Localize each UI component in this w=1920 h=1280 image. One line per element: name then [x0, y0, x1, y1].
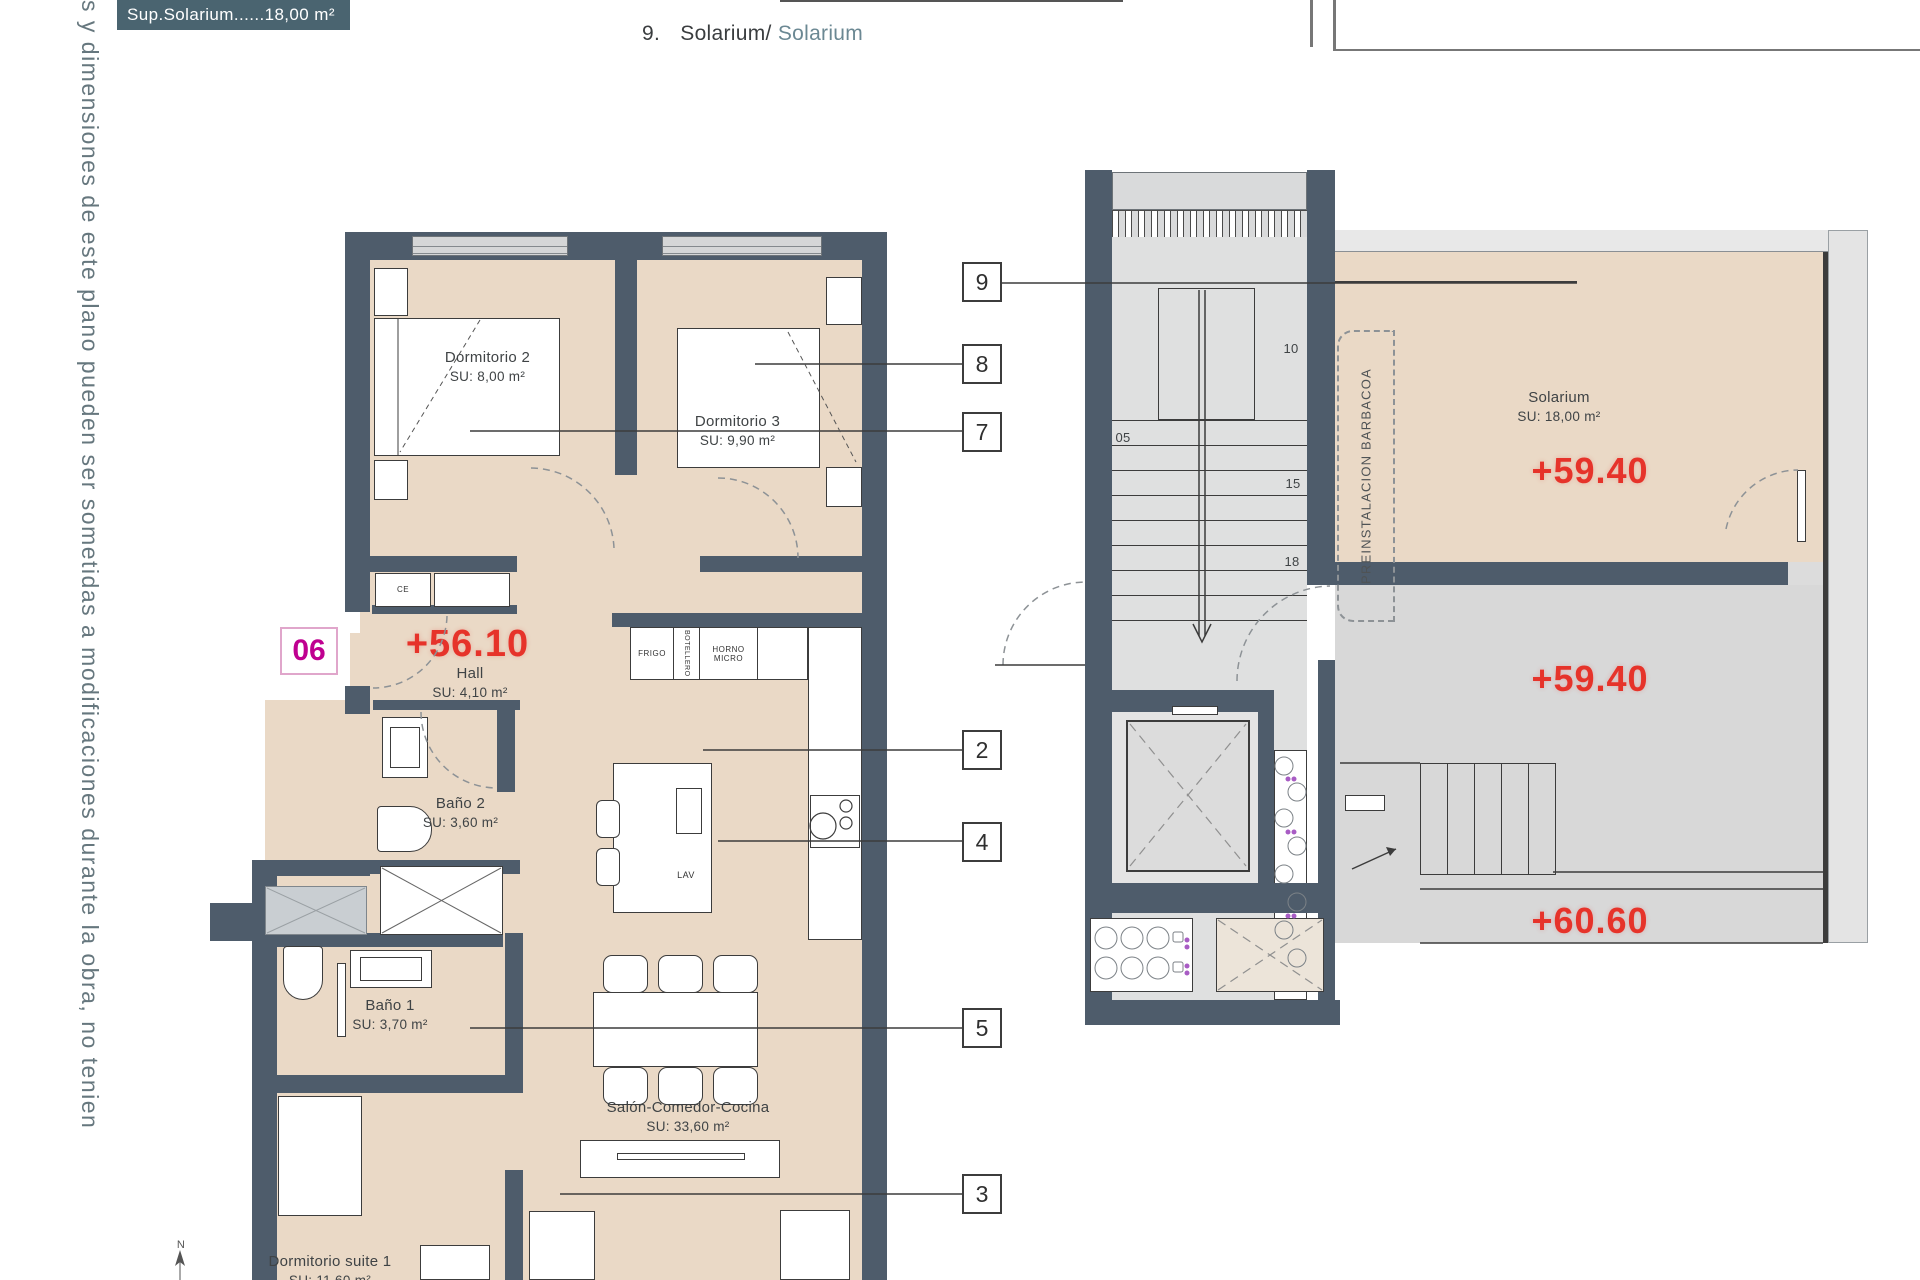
wall-left-stub: [345, 686, 370, 714]
stair-treads: [1112, 420, 1307, 644]
room-label-suite: Dormitorio suite 1 SU: 11,60 m²: [230, 1252, 430, 1280]
nightstand: [374, 460, 408, 500]
kitchen-counter-top: FRIGO BOTELLERO HORNO MICRO: [630, 627, 808, 680]
level-terrace: +59.40: [1490, 656, 1690, 703]
stairwell-void: [1158, 288, 1255, 420]
cooktop: [810, 795, 860, 848]
core-top-landing: [1112, 172, 1307, 210]
callout-3: 3: [962, 1174, 1002, 1214]
suite-bed: [420, 1245, 490, 1280]
cropped-table-edge: [780, 0, 1123, 2]
wall-pillar: [210, 903, 256, 941]
closet: [826, 467, 862, 507]
room-name: Dormitorio suite 1: [230, 1252, 430, 1272]
room-area: SU: 18,00 m²: [1459, 408, 1659, 426]
core-wall-right: [1307, 236, 1335, 585]
dining-table: [593, 992, 758, 1067]
window-dormitorio2: [412, 236, 568, 256]
closet: [434, 573, 510, 607]
room-label-dormitorio2: Dormitorio 2 SU: 8,00 m²: [395, 348, 580, 385]
callout-2: 2: [962, 730, 1002, 770]
sofa: [780, 1210, 850, 1280]
floor-terrace: [1335, 585, 1828, 943]
fridge-cell: FRIGO: [631, 628, 674, 679]
elevator-wall-right: [1258, 690, 1274, 883]
core-wall-mid: [1085, 883, 1335, 913]
shower: [265, 886, 367, 935]
sofa: [529, 1211, 595, 1280]
terrace-stair-treads: [1420, 763, 1556, 875]
callout-7: 7: [962, 412, 1002, 452]
wall-suite-divider: [505, 933, 523, 1093]
wall-bath1-north: [252, 933, 503, 947]
sink-basin: [390, 727, 420, 768]
vent-grille: [1112, 210, 1307, 238]
callout-5: 5: [962, 1008, 1002, 1048]
legend-item-label: Solarium/: [680, 22, 771, 45]
elevator-door: [1172, 706, 1218, 715]
stool: [596, 848, 620, 886]
north-arrow-icon: [175, 1250, 185, 1280]
core-wall-bottom: [1085, 1000, 1340, 1025]
tv: [617, 1153, 745, 1160]
room-name: Dormitorio 3: [645, 412, 830, 432]
bed-dormitorio2: [374, 318, 560, 456]
barbecue-preinstall-box: PREINSTALACION BARBACOA: [1337, 330, 1395, 622]
room-label-bano1: Baño 1 SU: 3,70 m²: [320, 996, 460, 1033]
closet: [826, 277, 862, 325]
room-area: SU: 8,00 m²: [395, 368, 580, 386]
room-name: Solarium: [1459, 388, 1659, 408]
wall-bath2-north: [373, 700, 520, 710]
room-area: SU: 9,90 m²: [645, 432, 830, 450]
room-name: Baño 2: [388, 794, 533, 814]
area-legend-box: Sup.Solarium......18,00 m²: [117, 0, 350, 30]
closet-ce-label: CE: [380, 585, 426, 595]
room-area: SU: 4,10 m²: [390, 684, 550, 702]
core-wall-right-top: [1307, 170, 1335, 236]
roof-edge-strip: [1335, 230, 1828, 252]
callout-9: 9: [962, 262, 1002, 302]
room-area: SU: 11,60 m²: [230, 1272, 430, 1280]
wall-dorm3-south: [700, 556, 862, 572]
parapet-band: [1828, 230, 1868, 943]
cropped-outline-left: [1310, 0, 1313, 47]
chair: [713, 955, 758, 993]
oven-cell: HORNO MICRO: [700, 628, 758, 679]
wall-suite-divider-lower: [505, 1170, 523, 1280]
cropped-outline-right: [1333, 0, 1336, 50]
stool: [596, 800, 620, 838]
window-dormitorio3: [662, 236, 822, 256]
stair-newel: [1345, 795, 1385, 811]
fridge-label: FRIGO: [638, 649, 666, 658]
elevator-cab: [1126, 720, 1250, 872]
room-area: SU: 33,60 m²: [588, 1118, 788, 1136]
legend-item-number: 9.: [642, 22, 660, 45]
level-upper: +60.60: [1490, 898, 1690, 945]
kitchen-island: [613, 763, 712, 913]
wall-dorm2-south: [345, 556, 517, 572]
door-leaf-solarium: [1797, 470, 1806, 542]
hatch-panel: [1216, 918, 1324, 992]
north-label: N: [166, 1238, 196, 1252]
oven-label: HORNO: [712, 645, 744, 654]
room-area: SU: 3,60 m²: [388, 814, 533, 832]
room-label-solarium: Solarium SU: 18,00 m²: [1459, 388, 1659, 425]
wall-solarium-south: [1335, 562, 1828, 585]
room-name: Salón-Comedor-Cocina: [588, 1098, 788, 1118]
bottle-rack-cell: BOTELLERO: [674, 628, 700, 679]
wall-right: [862, 232, 887, 1280]
stair-step-05: 05: [1108, 430, 1138, 447]
bottle-rack-label: BOTELLERO: [683, 630, 690, 677]
room-name: Hall: [390, 664, 550, 684]
wall-bath2-east: [497, 710, 515, 792]
room-label-dormitorio3: Dormitorio 3 SU: 9,90 m²: [645, 412, 830, 449]
legend-item-solarium: 9. Solarium/ Solarium: [642, 22, 863, 46]
room-label-hall: Hall SU: 4,10 m²: [390, 664, 550, 701]
washer-label: LAV: [666, 870, 706, 882]
kitchen-counter-right: [808, 627, 862, 940]
level-solarium: +59.40: [1490, 448, 1690, 495]
room-label-salon: Salón-Comedor-Cocina SU: 33,60 m²: [588, 1098, 788, 1135]
suite-closet: [278, 1096, 362, 1216]
wall-kitchen-north: [612, 613, 862, 627]
room-area: SU: 3,70 m²: [320, 1016, 460, 1034]
callout-8: 8: [962, 344, 1002, 384]
unit-number-badge: 06: [280, 627, 338, 675]
counter-cell: [758, 628, 807, 679]
island-sink: [676, 788, 702, 834]
callout-4: 4: [962, 822, 1002, 862]
wall-suite-north: [252, 1075, 505, 1093]
floorplan-page: s y dimensiones de este plano pueden ser…: [0, 0, 1920, 1280]
sink-basin: [360, 957, 422, 981]
room-name: Baño 1: [320, 996, 460, 1016]
chair: [658, 955, 703, 993]
wardrobe: [380, 866, 503, 935]
room-label-bano2: Baño 2 SU: 3,60 m²: [388, 794, 533, 831]
stair-step-15: 15: [1278, 476, 1308, 493]
installation-panel: [1090, 918, 1193, 992]
legend-item-label-alt: Solarium: [778, 22, 863, 45]
chair: [603, 955, 648, 993]
nightstand: [374, 268, 408, 316]
stair-step-18: 18: [1277, 554, 1307, 571]
level-hall: +56.10: [380, 620, 555, 669]
cropped-outline-top: [1333, 49, 1920, 51]
wall-partition-dorms: [615, 260, 637, 475]
micro-label: MICRO: [714, 654, 743, 663]
stair-step-10: 10: [1276, 341, 1306, 358]
disclaimer-vertical-text: s y dimensiones de este plano pueden ser…: [76, 0, 103, 1280]
barbecue-label: PREINSTALACION BARBACOA: [1359, 368, 1374, 584]
room-name: Dormitorio 2: [395, 348, 580, 368]
toilet-bath1: [283, 946, 323, 1000]
